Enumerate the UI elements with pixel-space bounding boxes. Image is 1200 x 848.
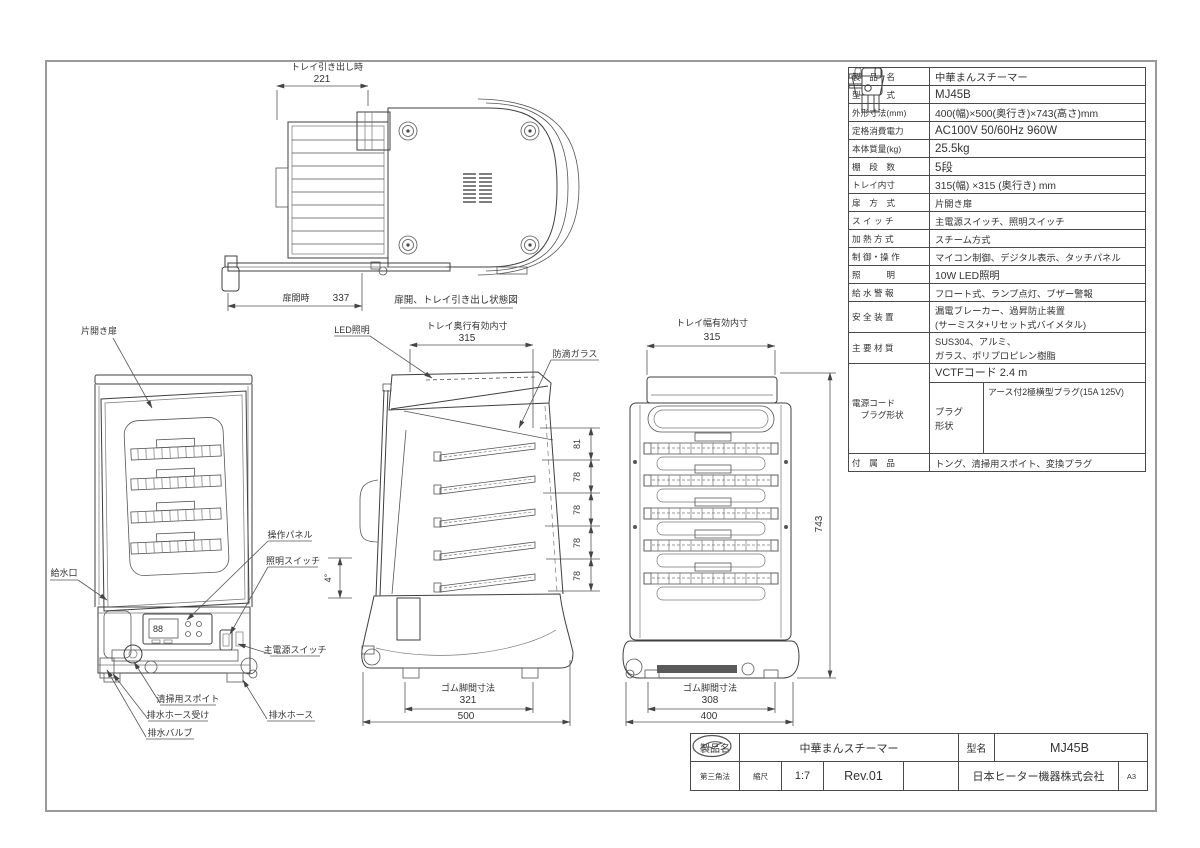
door-callout: 片開き扉	[81, 325, 117, 336]
spec-label: 給 水 警 報	[849, 284, 930, 302]
dim-feet-label-rear: ゴム脚間寸法	[683, 682, 737, 693]
spec-value: AC100V 50/60Hz 960W	[930, 122, 1146, 140]
spec-row-dimensions: 外形寸法(mm)400(幅)×500(奥行き)×743(高さ)mm	[849, 104, 1146, 122]
paper-size: A3	[1118, 762, 1144, 790]
light-switch-callout: 照明スイッチ	[266, 556, 320, 566]
drawing-sheet: トレイ引き出し時 221 扉開時 337 扉開、トレイ引き出し状態図	[0, 0, 1200, 848]
spec-row-door: 扉 方 式片開き扉	[849, 194, 1146, 212]
dim-width-value: 400	[701, 711, 718, 722]
spec-value: 315(幅) ×315 (奥行き) mm	[930, 176, 1146, 194]
spec-table: 製 品 名中華まんスチーマー 型 式MJ45B 外形寸法(mm)400(幅)×5…	[848, 67, 1146, 472]
spec-value: 中華まんスチーマー	[930, 68, 1146, 86]
dim-tray-width-value: 315	[704, 332, 721, 343]
spec-row-accessories: 付 属 品トング、清掃用スポイト、変換プラグ	[849, 454, 1146, 472]
dim-tray-width-label: トレイ幅有効内寸	[676, 317, 748, 328]
dim-tray-depth-label: トレイ奥行有効内寸	[426, 320, 507, 331]
base-front: 88	[98, 607, 257, 682]
tray-row	[644, 433, 778, 600]
title-product-value: 中華まんスチーマー	[739, 734, 958, 761]
top-view-caption: 扉開、トレイ引き出し状態図	[394, 294, 518, 306]
spec-label: 棚 段 数	[849, 158, 930, 176]
spec-row-switch: ス イ ッ チ主電源スイッチ、照明スイッチ	[849, 212, 1146, 230]
power-cord-cell: VCTFコード 2.4 m プラグ 形状 アース付2極横型プラグ(15A 125…	[930, 364, 1146, 454]
dim-tray-depth-value: 315	[459, 333, 476, 344]
spec-value: 片開き扉	[930, 194, 1146, 212]
screw-icon	[399, 122, 539, 254]
cord-spec: VCTFコード 2.4 m	[930, 364, 1145, 383]
spec-value: フロート式、ランプ点灯、ブザー警報	[930, 284, 1146, 302]
drain-valve-callout: 排水バルブ	[147, 727, 192, 738]
spec-row-model: 型 式MJ45B	[849, 86, 1146, 104]
front-view-drawing: 88 片開き扉 給水口	[50, 325, 327, 739]
spec-label: 安 全 装 置	[849, 302, 930, 333]
dim-tray-pullout-label: トレイ引き出し時	[291, 61, 363, 72]
rear-view-drawing: トレイ幅有効内寸 315 743 ゴム脚間寸法 308 400	[623, 317, 836, 726]
drain-hose-callout: 排水ホース	[269, 709, 314, 720]
dim-depth-value: 500	[458, 711, 475, 722]
dim-height-value: 743	[814, 515, 825, 532]
scale-value: 1:7	[781, 762, 823, 790]
spec-label: 扉 方 式	[849, 194, 930, 212]
spec-row-control: 制 御・操 作マイコン制御、デジタル表示、タッチパネル	[849, 248, 1146, 266]
pitch-81: 81	[572, 439, 582, 449]
spec-row-power-cord: 電源コード プラグ形状 VCTFコード 2.4 m プラグ 形状 アース付2極横…	[849, 364, 1146, 454]
spec-label: 本体質量(kg)	[849, 140, 930, 158]
revision: Rev.01	[823, 762, 903, 790]
pitch-78-1: 78	[572, 472, 582, 482]
spec-label: 主 要 材 質	[849, 333, 930, 364]
dim-feet-value-side: 321	[460, 695, 477, 706]
spec-label: 制 御・操 作	[849, 248, 930, 266]
title-model-label: 型名	[958, 734, 994, 761]
spec-label: ス イ ッ チ	[849, 212, 930, 230]
tilt-angle: 4°	[323, 573, 333, 582]
spec-value: 25.5kg	[930, 140, 1146, 158]
drain-hose-holder-callout: 排水ホース受け	[147, 709, 210, 720]
pitch-78-4: 78	[572, 571, 582, 581]
glass-callout: 防滴ガラス	[553, 348, 598, 359]
door-handle	[360, 480, 378, 542]
open-door	[222, 256, 450, 291]
spec-row-safety: 安 全 装 置漏電ブレーカー、過昇防止装置 (サーミスタ+リセット式バイメタル)	[849, 302, 1146, 333]
spec-label: 電源コード プラグ形状	[849, 364, 930, 454]
shelf-side	[434, 443, 535, 592]
spec-row-power: 定格消費電力AC100V 50/60Hz 960W	[849, 122, 1146, 140]
spec-row-tray-size: トレイ内寸315(幅) ×315 (奥行き) mm	[849, 176, 1146, 194]
title-model-value: MJ45B	[994, 734, 1144, 761]
spec-label: 定格消費電力	[849, 122, 930, 140]
dim-tray-pullout-value: 221	[314, 74, 331, 85]
spec-value: MJ45B	[930, 86, 1146, 104]
dim-feet-label-side: ゴム脚間寸法	[441, 682, 495, 693]
spec-label: 照 明	[849, 266, 930, 284]
shelf-pitch-dims: 81 78 78 78 78	[540, 428, 600, 591]
spec-label: 加 熱 方 式	[849, 230, 930, 248]
led-callout: LED照明	[334, 325, 370, 335]
spec-label: トレイ内寸	[849, 176, 930, 194]
spec-row-weight: 本体質量(kg)25.5kg	[849, 140, 1146, 158]
water-tank	[104, 611, 131, 658]
dropper-callout: 清掃用スポイト	[156, 693, 219, 704]
spec-value: トング、清掃用スポイト、変換プラグ	[930, 454, 1146, 472]
pitch-78-2: 78	[572, 505, 582, 515]
shelf	[130, 437, 221, 554]
plug-shape-label: プラグ 形状	[930, 383, 984, 453]
spec-value: 主電源スイッチ、照明スイッチ	[930, 212, 1146, 230]
spec-value: マイコン制御、デジタル表示、タッチパネル	[930, 248, 1146, 266]
plug-type-label: アース付2極横型プラグ(15A 125V)	[984, 383, 1145, 398]
dim-door-open-label: 扉開時	[282, 292, 309, 303]
spec-label: 付 属 品	[849, 454, 930, 472]
company-logo	[903, 762, 958, 790]
display-digits: 88	[153, 624, 163, 634]
led-strip	[426, 377, 535, 380]
vent-grille-icon	[463, 174, 492, 202]
spec-value: スチーム方式	[930, 230, 1146, 248]
drain-hose	[241, 658, 257, 674]
spec-row-heating: 加 熱 方 式スチーム方式	[849, 230, 1146, 248]
spec-value: 400(幅)×500(奥行き)×743(高さ)mm	[930, 104, 1146, 122]
top-view-drawing: トレイ引き出し時 221 扉開時 337 扉開、トレイ引き出し状態図	[222, 61, 579, 311]
spec-row-water-alarm: 給 水 警 報フロート式、ランプ点灯、ブザー警報	[849, 284, 1146, 302]
tray-rack	[276, 112, 390, 258]
spec-value: 漏電ブレーカー、過昇防止装置 (サーミスタ+リセット式バイメタル)	[930, 302, 1146, 333]
side-view-drawing: トレイ奥行有効内寸 315 LED照明 防滴ガラス 81 78 78 78 78	[323, 320, 600, 726]
operation-panel-callout: 操作パネル	[267, 529, 312, 540]
projection-method: 第三角法	[691, 762, 739, 790]
company-name: 日本ヒーター機器株式会社	[958, 762, 1118, 790]
spec-value: SUS304、アルミ、 ガラス、ポリプロピレン樹脂	[930, 333, 1146, 364]
water-inlet-callout: 給水口	[50, 567, 77, 578]
title-block: 製品名 中華まんスチーマー 型名 MJ45B 第三角法 縮尺 1:7 Rev.0…	[690, 733, 1148, 791]
spec-row-materials: 主 要 材 質SUS304、アルミ、 ガラス、ポリプロピレン樹脂	[849, 333, 1146, 364]
main-power-switch-callout: 主電源スイッチ	[263, 644, 326, 655]
spec-row-lighting: 照 明10W LED照明	[849, 266, 1146, 284]
dim-feet-value-rear: 308	[702, 695, 719, 706]
spec-value: 10W LED照明	[930, 266, 1146, 284]
dim-door-open-value: 337	[333, 293, 350, 304]
spec-value: 5段	[930, 158, 1146, 176]
base-grille	[657, 665, 737, 673]
scale-label: 縮尺	[739, 762, 781, 790]
spec-row-shelves: 棚 段 数5段	[849, 158, 1146, 176]
drain-valve	[124, 645, 142, 663]
pitch-78-3: 78	[572, 538, 582, 548]
spec-row-product: 製 品 名中華まんスチーマー	[849, 68, 1146, 86]
